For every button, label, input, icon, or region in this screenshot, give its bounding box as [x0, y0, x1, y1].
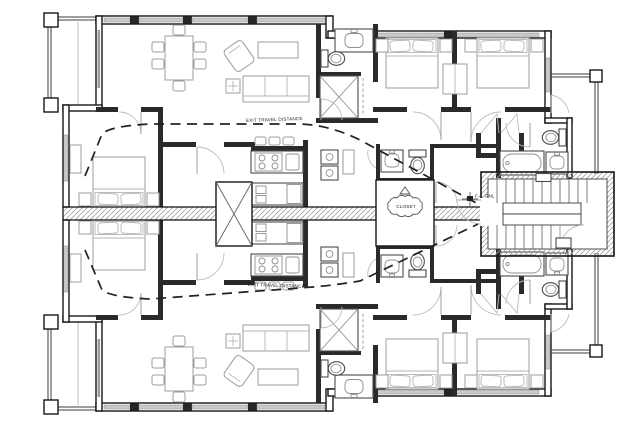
closet-bifold-doors — [501, 114, 519, 133]
bar-counter — [251, 146, 303, 151]
bed-icon — [93, 157, 145, 207]
fire-panel-label: F.A. PNL — [475, 194, 495, 199]
sofa-icon — [243, 76, 309, 102]
stair-door-opening — [480, 198, 489, 226]
floor-plan-sheet: CLOSET — [0, 0, 638, 428]
dresser-icon — [70, 145, 81, 173]
toilet-icon — [321, 50, 345, 67]
floor-plan-drawing: CLOSET — [0, 0, 638, 428]
balcony-post — [590, 70, 602, 82]
living-dining-room — [98, 25, 310, 102]
mullion — [444, 32, 453, 38]
side-table-icon — [226, 79, 240, 93]
toilet-icon — [542, 129, 566, 146]
nightstand-icon — [531, 39, 543, 52]
window-icon — [546, 58, 550, 92]
deck-post — [44, 98, 58, 112]
stair-landing-icon — [503, 203, 581, 214]
kitchen — [251, 137, 354, 205]
coffee-table-icon — [258, 42, 298, 58]
shaft-x-icon — [216, 182, 252, 246]
chair-icon — [194, 59, 206, 69]
mullion — [183, 17, 192, 24]
nightstand-icon — [376, 39, 388, 52]
deck — [44, 13, 98, 112]
exit-path-top-label: EXIT TRAVEL DISTANCE — [246, 116, 303, 123]
stairwell — [457, 172, 614, 256]
chair-icon — [152, 42, 164, 52]
deck-post — [44, 13, 58, 27]
utility-fixtures — [321, 150, 354, 180]
sliding-door — [98, 30, 101, 88]
bar-stool-icon — [255, 137, 266, 145]
window-icon — [64, 135, 68, 181]
window-icon — [257, 18, 325, 22]
chair-icon — [194, 42, 206, 52]
chair-icon — [173, 25, 185, 35]
window-icon — [104, 18, 130, 22]
hose-cabinet — [556, 238, 571, 248]
bar-stool-icon — [269, 137, 280, 145]
mullion — [130, 17, 139, 24]
vanity-sink-icon — [335, 29, 373, 52]
counter-fridge — [251, 183, 303, 205]
nightstand-icon — [440, 39, 452, 52]
center-closet-room: CLOSET — [376, 180, 434, 246]
nightstand-icon — [465, 39, 477, 52]
stair-landing-icon — [503, 214, 581, 225]
window-icon — [453, 33, 539, 37]
chair-icon — [173, 81, 185, 91]
west-bedroom — [70, 145, 159, 207]
bedroom-a — [376, 38, 452, 88]
window-icon — [192, 18, 248, 22]
nightstand-icon — [147, 193, 159, 206]
dining-table-icon — [165, 36, 193, 80]
revision-cloud-note: CLOSET — [396, 204, 416, 209]
center-bathroom — [381, 150, 426, 174]
vanity-sink-icon — [546, 152, 568, 174]
bedroom-b — [465, 38, 543, 88]
window-icon — [139, 18, 183, 22]
counter-range — [251, 151, 303, 173]
washer-dryer-icon — [320, 76, 363, 118]
nightstand-icon — [79, 193, 91, 206]
hose-cabinet — [536, 174, 551, 182]
chair-icon — [152, 59, 164, 69]
toilet-icon — [409, 150, 426, 174]
mullion — [248, 17, 257, 24]
armchair-icon — [223, 39, 256, 73]
bar-stool-icon — [283, 137, 294, 145]
bed-icon — [386, 38, 438, 88]
bed-icon — [477, 38, 529, 88]
